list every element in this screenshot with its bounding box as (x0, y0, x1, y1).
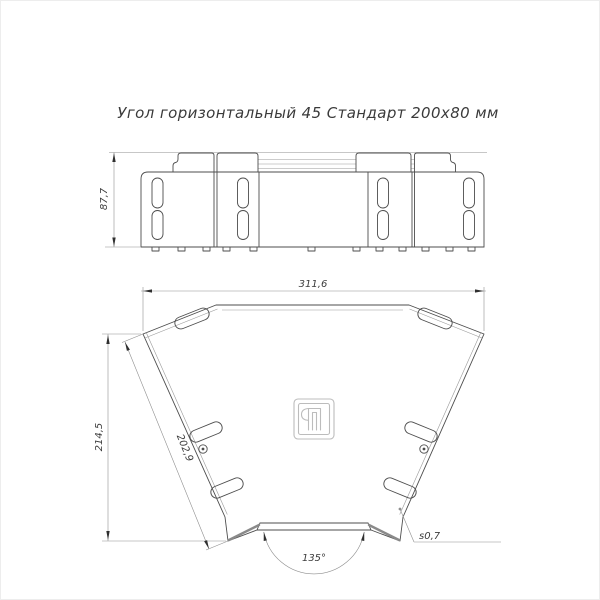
side-view-body (141, 172, 484, 247)
drawing-page: Угол горизонтальный 45 Стандарт 200x80 м… (0, 0, 600, 600)
dim-side-height-label: 87,7 (99, 187, 110, 210)
dim-thickness: s0,7 (399, 508, 501, 542)
dim-angle: 135° (264, 532, 365, 574)
drawing-title: Угол горизонтальный 45 Стандарт 200x80 м… (117, 104, 498, 122)
top-flange-tabs (173, 153, 456, 172)
dim-thickness-label: s0,7 (419, 531, 441, 542)
dim-side-height: 87,7 (99, 153, 116, 248)
technical-drawing: Угол горизонтальный 45 Стандарт 200x80 м… (1, 1, 600, 600)
plan-body (143, 305, 484, 541)
dim-plan-height-label: 214,5 (94, 423, 105, 452)
side-view-feet (152, 247, 475, 251)
dim-angle-label: 135° (302, 553, 326, 564)
plan-view: 311,6 214,5 202,9 135° (94, 279, 501, 574)
dim-plan-width-label: 311,6 (299, 279, 328, 290)
side-elevation-view: 87,7 (99, 153, 487, 252)
